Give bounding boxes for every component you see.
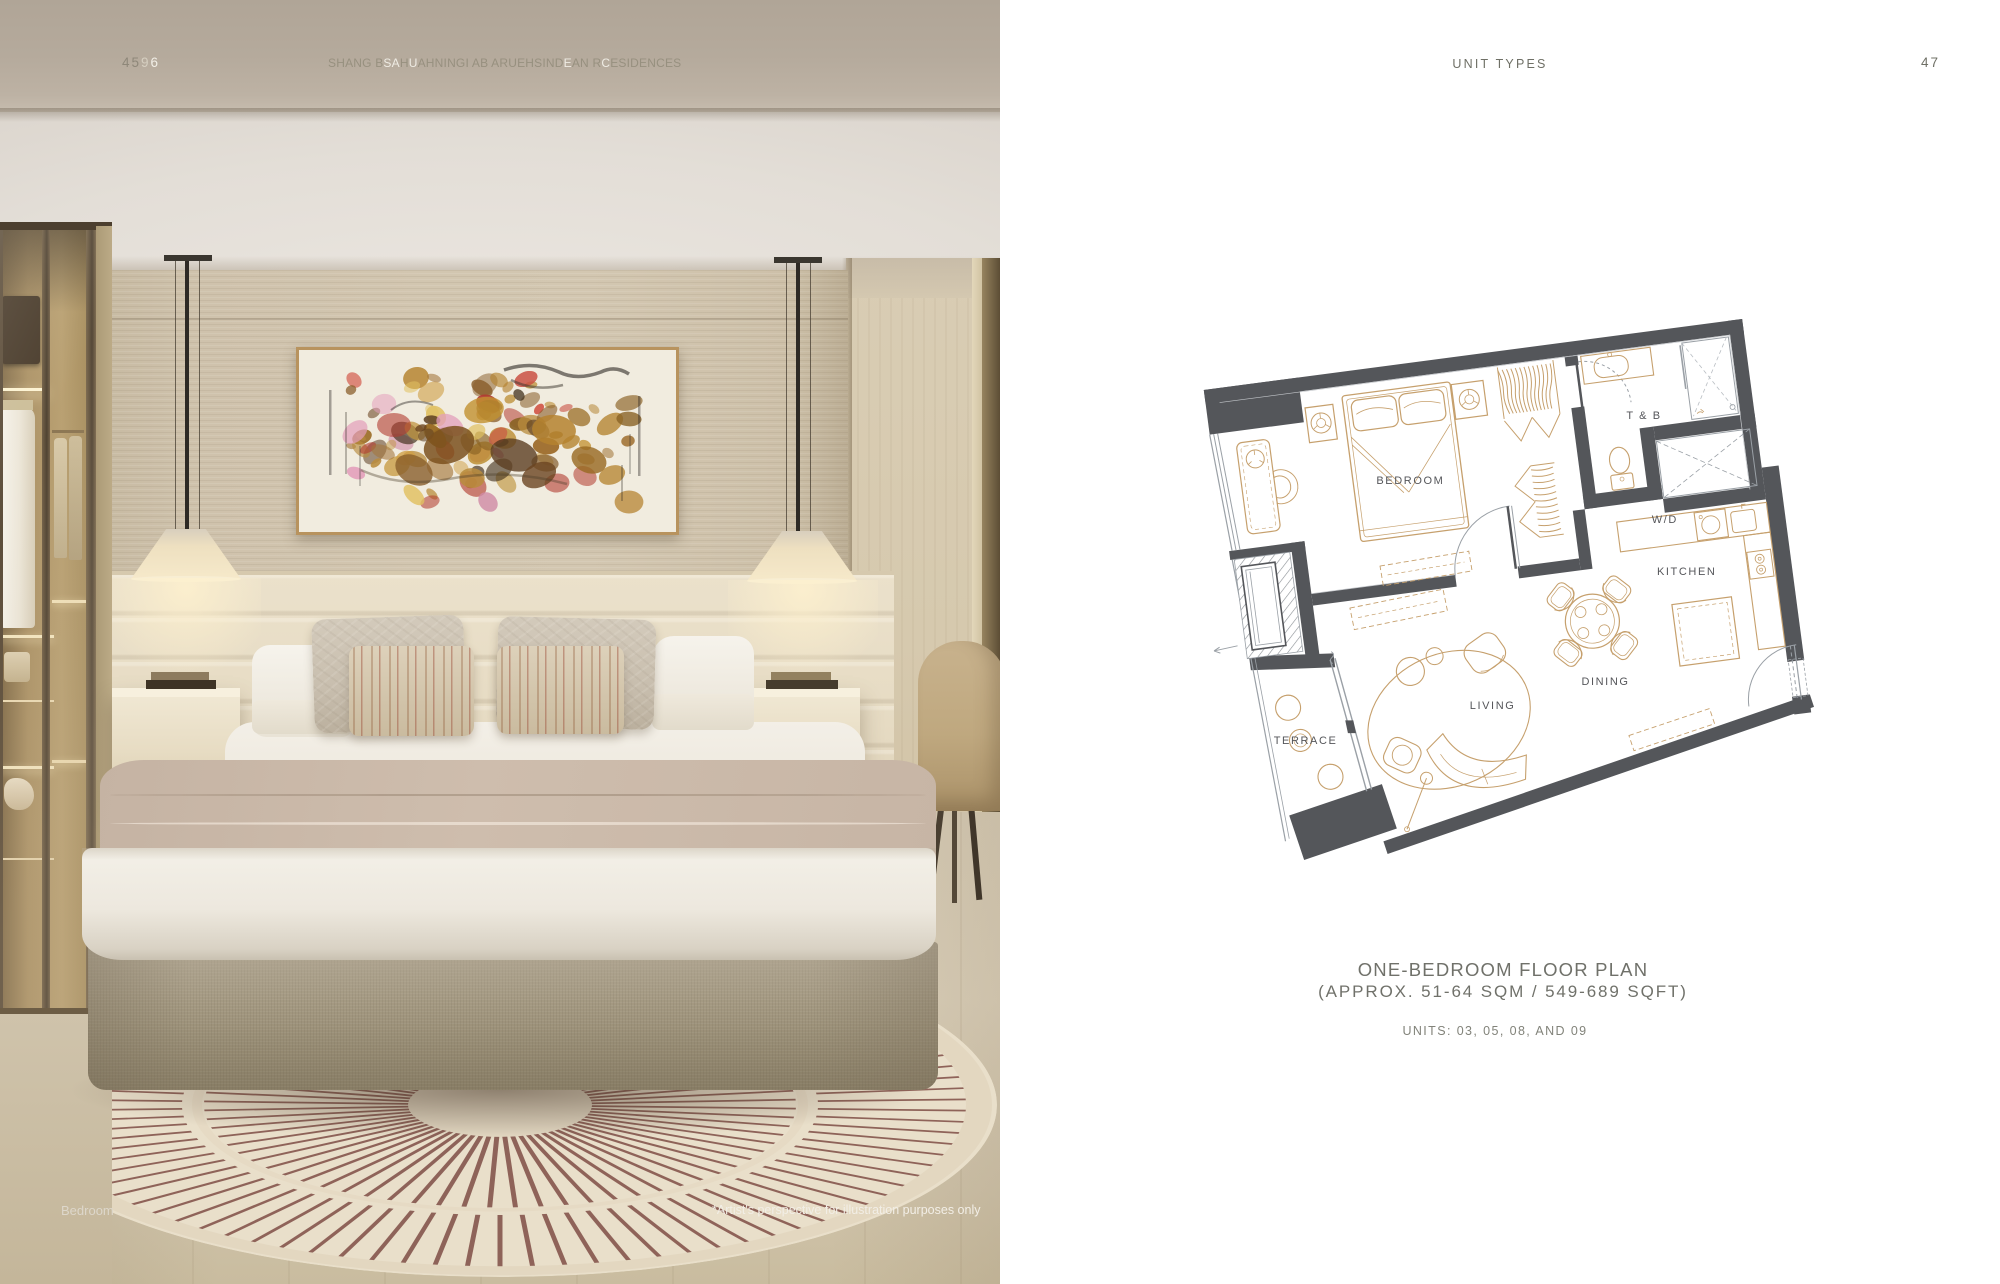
svg-text:W/D: W/D — [1652, 514, 1678, 526]
svg-text:BEDROOM: BEDROOM — [1376, 475, 1444, 487]
svg-text:DINING: DINING — [1581, 676, 1629, 688]
svg-text:T & B: T & B — [1626, 410, 1661, 422]
svg-text:TERRACE: TERRACE — [1274, 735, 1338, 747]
svg-text:KITCHEN: KITCHEN — [1657, 566, 1716, 578]
svg-text:LIVING: LIVING — [1470, 700, 1516, 712]
